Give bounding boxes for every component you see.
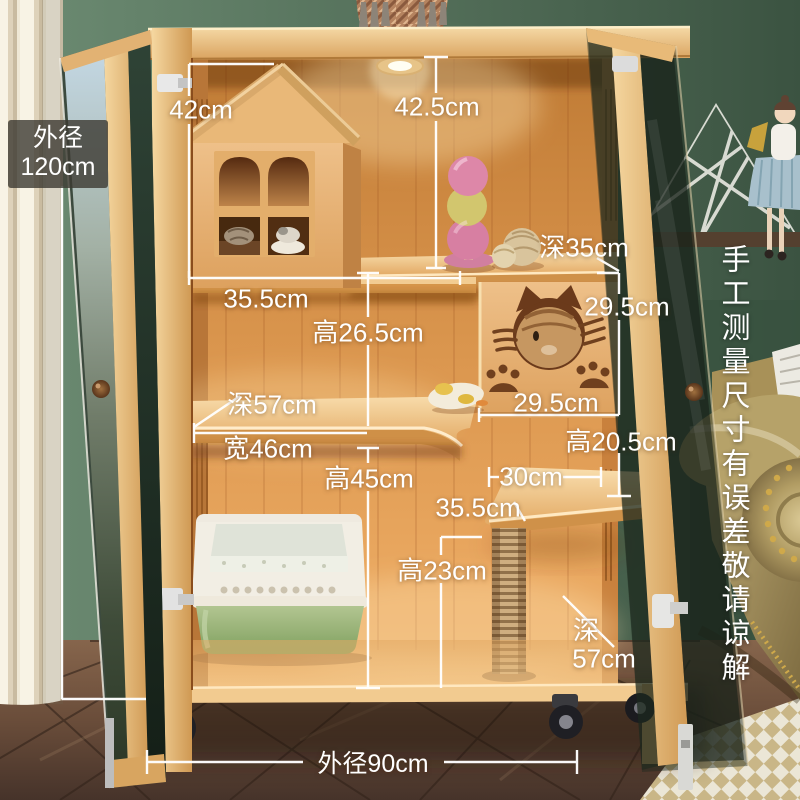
left-door-knob [92,380,110,398]
door-hinge-strip [105,718,114,788]
right-door-knob [685,383,703,401]
scene-illustration [0,0,800,800]
cat-face-panel [480,282,618,418]
curtains [0,0,63,705]
cabinet-floor [152,640,688,703]
product-dimension-image: 外径 120cm 42cm 42.5cm 深35cm 35.5cm 高26.5c… [0,0,800,800]
